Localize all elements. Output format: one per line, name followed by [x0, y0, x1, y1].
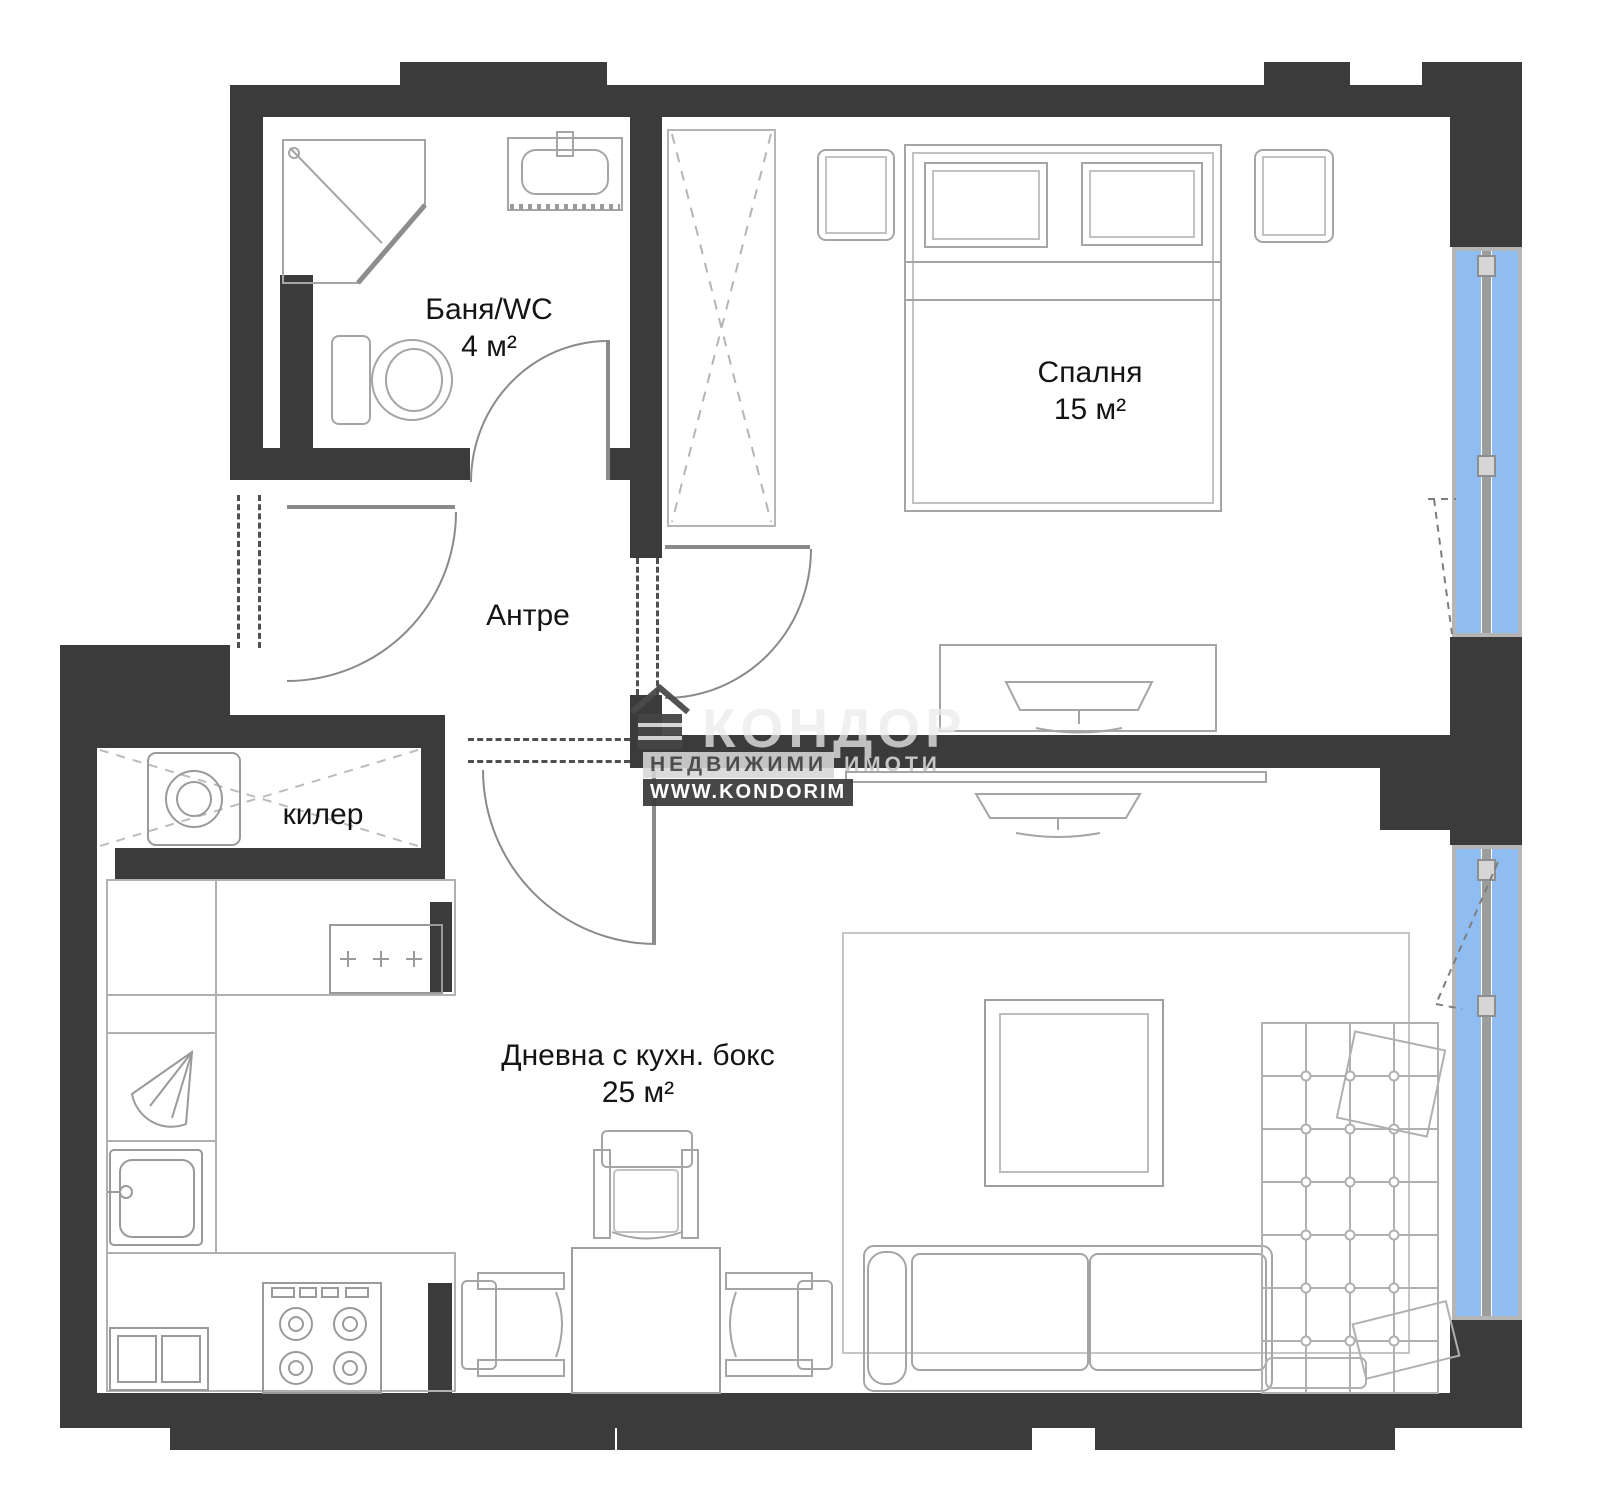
watermark-brand: КОНДОР [702, 696, 967, 760]
room-area: 25 м² [501, 1075, 774, 1112]
watermark-tagline: НЕДВИЖИМИ [643, 752, 834, 778]
watermark-website: WWW.KONDORIM [643, 779, 853, 806]
watermark: КОНДОР НЕДВИЖИМИИМОТИ WWW.KONDORIM [630, 682, 1050, 807]
floor-plan: Баня/WC 4 м² Спалня 15 м² Антре килер Дн… [0, 0, 1600, 1494]
house-logo-icon [630, 684, 692, 754]
coffee-table [985, 1000, 1163, 1186]
chair-top [594, 1131, 698, 1239]
window-sash-indicator [1428, 499, 1498, 1009]
under-counter-appliance [110, 1328, 208, 1390]
kitchen-sink [107, 1150, 202, 1245]
nightstand-right [1255, 150, 1333, 242]
room-name: Антре [486, 598, 570, 635]
room-area: 4 м² [425, 329, 553, 366]
wardrobe [668, 130, 775, 526]
rug [843, 933, 1409, 1353]
watermark-tagline-row: НЕДВИЖИМИИМОТИ [643, 752, 941, 778]
room-name: Баня/WC [425, 292, 553, 329]
room-area: 15 м² [1038, 392, 1143, 429]
hob-plus-box [330, 925, 442, 993]
room-name: Дневна с кухн. бокс [501, 1038, 774, 1075]
cooker-hood-fan [132, 1052, 192, 1127]
watermark-tagline-ghost: ИМОТИ [844, 753, 941, 777]
sink-vanity [508, 132, 622, 210]
double-bed [905, 145, 1221, 511]
room-name: Спалня [1038, 355, 1143, 392]
chair-left [462, 1273, 564, 1376]
dining-table [572, 1248, 720, 1393]
shower-cabin [283, 140, 425, 283]
room-label-hall: Антре [486, 598, 570, 635]
stove [263, 1283, 381, 1393]
room-label-bathroom: Баня/WC 4 м² [425, 292, 553, 365]
room-name: килер [283, 797, 364, 834]
tufted-daybed [1262, 1023, 1459, 1393]
room-label-pantry: килер [283, 797, 364, 834]
kitchen-counter [107, 880, 455, 1391]
chair-right [726, 1273, 832, 1376]
nightstand-left [818, 150, 894, 240]
washing-machine [148, 753, 240, 845]
sofa [864, 1246, 1272, 1391]
room-label-living: Дневна с кухн. бокс 25 м² [501, 1038, 774, 1111]
room-label-bedroom: Спалня 15 м² [1038, 355, 1143, 428]
